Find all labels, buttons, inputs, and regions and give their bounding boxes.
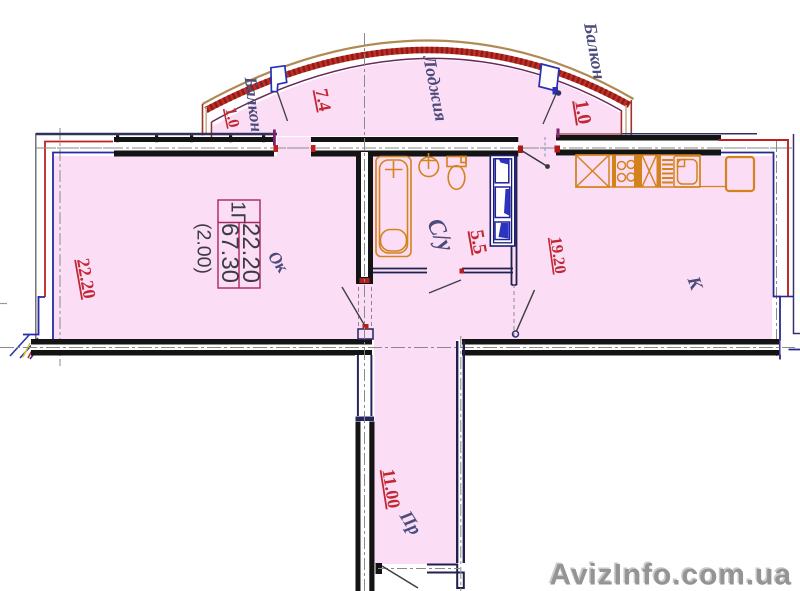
svg-text:5.5: 5.5 (465, 228, 490, 256)
svg-text:67.30: 67.30 (216, 223, 243, 283)
svg-text:AvizInfo.com.ua: AvizInfo.com.ua (550, 559, 792, 591)
svg-text:1.0: 1.0 (570, 98, 595, 125)
svg-text:7.4: 7.4 (311, 87, 335, 113)
svg-text:Балкон: Балкон (580, 20, 610, 81)
svg-text:(2.00): (2.00) (193, 223, 215, 274)
svg-text:1Г: 1Г (227, 201, 250, 224)
